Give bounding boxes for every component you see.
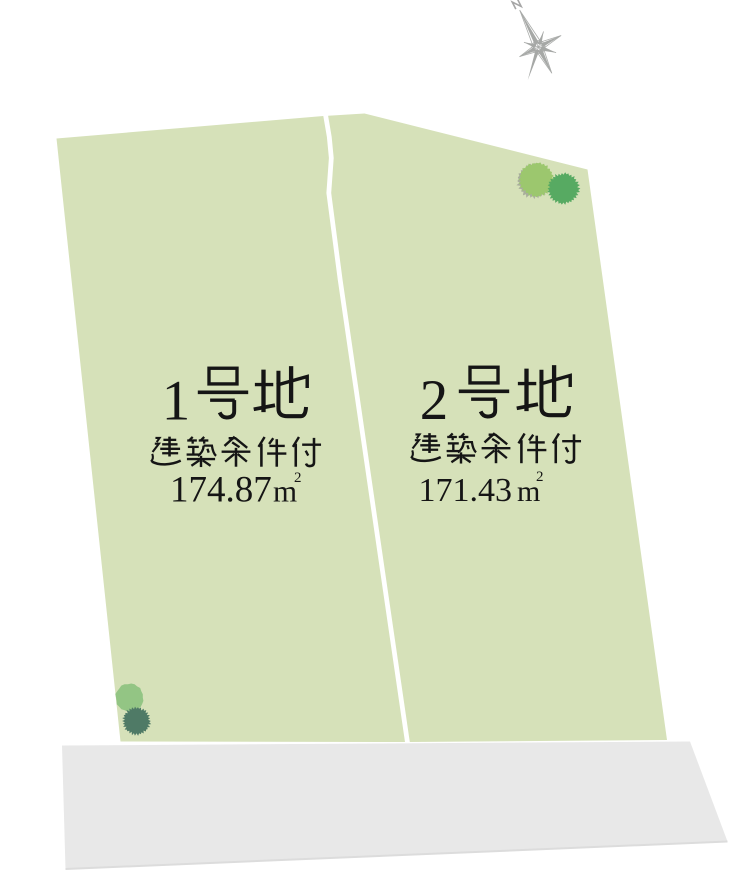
svg-text:2: 2 xyxy=(294,470,302,486)
svg-text:171.43: 171.43 xyxy=(419,472,513,509)
svg-text:2: 2 xyxy=(536,469,544,485)
svg-text:1: 1 xyxy=(162,370,191,433)
svg-text:2: 2 xyxy=(420,369,449,432)
svg-text:174.87: 174.87 xyxy=(170,470,272,511)
